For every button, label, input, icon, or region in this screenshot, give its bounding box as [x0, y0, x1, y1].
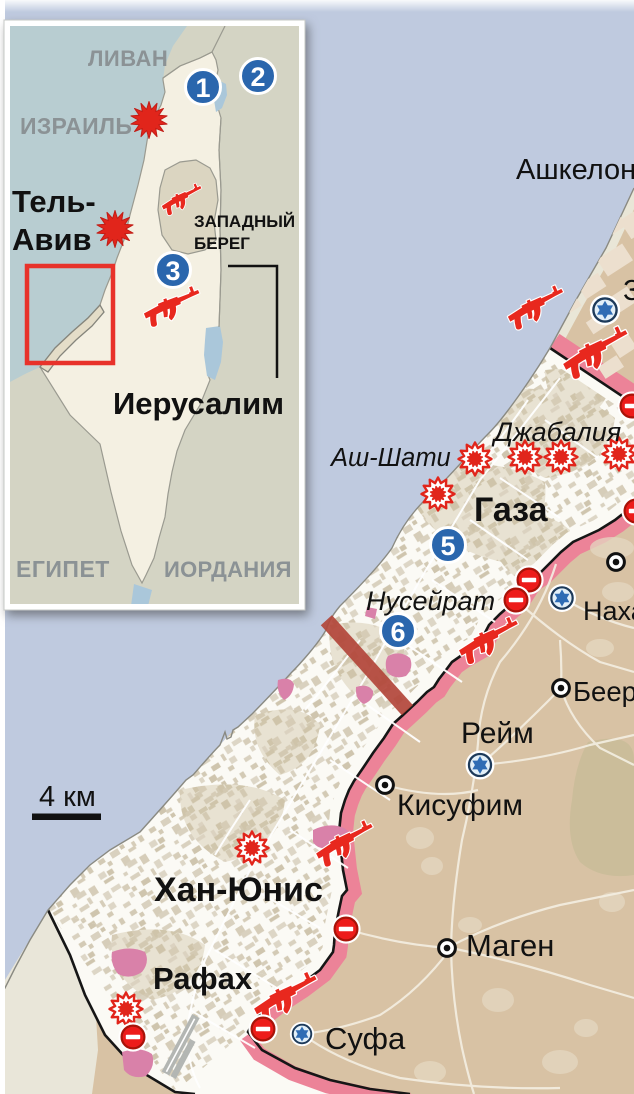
svg-text:Кисуфим: Кисуфим — [397, 789, 523, 822]
svg-text:6: 6 — [390, 617, 405, 647]
svg-text:ЗАПАДНЫЙ: ЗАПАДНЫЙ — [194, 212, 295, 231]
svg-text:Джабалия: Джабалия — [491, 417, 621, 447]
svg-text:Аш-Шати: Аш-Шати — [329, 444, 451, 472]
svg-text:ЕГИПЕТ: ЕГИПЕТ — [16, 556, 110, 582]
svg-text:Тель-: Тель- — [12, 184, 96, 219]
svg-text:Нахаль-Оз: Нахаль-Оз — [583, 596, 634, 626]
svg-text:Зиким: Зиким — [623, 275, 634, 307]
svg-text:Нусейрат: Нусейрат — [366, 586, 495, 616]
svg-text:Беери: Беери — [573, 676, 634, 707]
svg-text:3: 3 — [165, 256, 180, 286]
svg-text:ЛИВАН: ЛИВАН — [88, 46, 168, 71]
svg-text:ИЗРАИЛЬ: ИЗРАИЛЬ — [20, 113, 132, 139]
svg-text:Иерусалим: Иерусалим — [113, 386, 284, 421]
svg-text:Газа: Газа — [474, 491, 549, 529]
svg-text:БЕРЕГ: БЕРЕГ — [194, 234, 250, 253]
svg-text:Рафах: Рафах — [153, 961, 253, 996]
svg-text:Хан-Юнис: Хан-Юнис — [154, 871, 323, 909]
svg-text:4 км: 4 км — [39, 781, 96, 813]
svg-text:Ашкелон: Ашкелон — [516, 154, 634, 186]
svg-text:Суфа: Суфа — [325, 1021, 406, 1056]
svg-text:2: 2 — [250, 62, 265, 92]
svg-text:Авив: Авив — [12, 222, 92, 257]
svg-text:ИОРДАНИЯ: ИОРДАНИЯ — [164, 557, 292, 582]
svg-text:5: 5 — [440, 531, 455, 561]
svg-text:Рейм: Рейм — [461, 717, 534, 750]
svg-text:1: 1 — [195, 73, 210, 103]
svg-text:Маген: Маген — [466, 928, 554, 963]
